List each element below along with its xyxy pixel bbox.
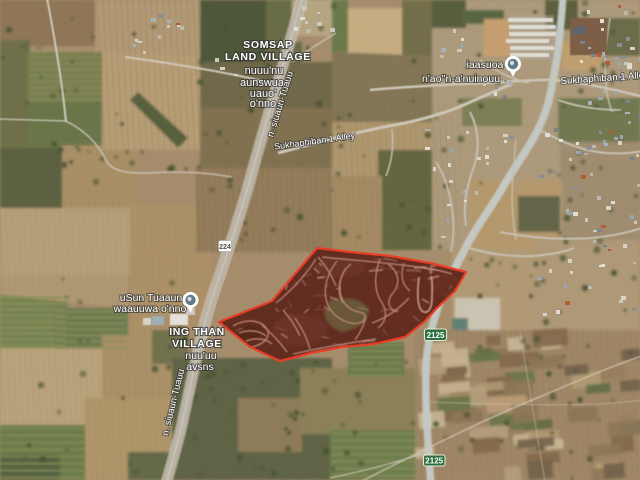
svg-text:iaasuoa: iaasuoa: [467, 59, 504, 71]
svg-text:waauuwa o'nno: waauuwa o'nno: [113, 303, 187, 315]
svg-text:2125: 2125: [427, 331, 445, 340]
svg-text:ING THAN: ING THAN: [169, 326, 225, 338]
svg-text:o'nno: o'nno: [250, 98, 277, 110]
svg-text:LAND VILLAGE: LAND VILLAGE: [225, 51, 311, 63]
svg-text:avsns: avsns: [186, 361, 213, 373]
svg-text:VILLAGE: VILLAGE: [172, 338, 222, 350]
svg-text:224: 224: [219, 244, 231, 251]
svg-text:SOMSAP: SOMSAP: [243, 39, 293, 51]
svg-text:nuuu'nu: nuuu'nu: [245, 65, 284, 77]
svg-text:n'ao''n-a'nuinouu: n'ao''n-a'nuinouu: [422, 73, 500, 85]
svg-text:2125: 2125: [425, 457, 443, 466]
